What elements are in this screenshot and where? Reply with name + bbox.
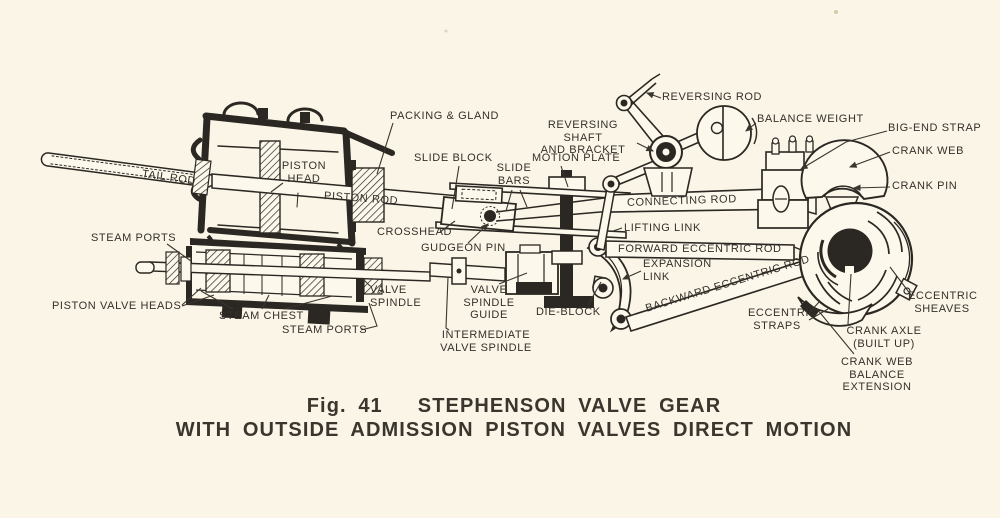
label-crank-axle-built-up: CRANK AXLE (BUILT UP) xyxy=(844,325,924,350)
crank-group xyxy=(758,136,917,326)
caption-line-2: WITH OUTSIDE ADMISSION PISTON VALVES DIR… xyxy=(28,418,1000,442)
figure-41-page: PACKING & GLANDSLIDE BLOCKSLIDE BARSMOTI… xyxy=(0,0,1000,518)
label-reversing-rod: REVERSING ROD xyxy=(662,91,762,104)
figure-caption: Fig. 41 STEPHENSON VALVE GEAR WITH OUTSI… xyxy=(28,394,1000,442)
label-steam-ports-lower: STEAM PORTS xyxy=(282,324,367,337)
label-forward-eccentric-rod: FORWARD ECCENTRIC ROD xyxy=(618,243,782,256)
caption-line-1: Fig. 41 STEPHENSON VALVE GEAR xyxy=(28,394,1000,418)
label-intermediate-valve-spindle: INTERMEDIATE VALVE SPINDLE xyxy=(440,329,532,354)
label-balance-weight: BALANCE WEIGHT xyxy=(757,113,864,126)
label-expansion-link: EXPANSION LINK xyxy=(643,258,712,283)
label-gudgeon-pin: GUDGEON PIN xyxy=(421,242,506,255)
label-steam-chest: STEAM CHEST xyxy=(219,310,304,323)
label-big-end-strap: BIG-END STRAP xyxy=(888,122,981,135)
label-eccentric-sheaves: ECCENTRIC SHEAVES xyxy=(908,290,976,315)
label-eccentric-straps: ECCENTRIC STRAPS xyxy=(748,307,806,332)
label-crank-pin: CRANK PIN xyxy=(892,180,957,193)
paper-specks xyxy=(445,10,839,33)
label-crosshead: CROSSHEAD xyxy=(377,226,452,239)
label-slide-bars: SLIDE BARS xyxy=(492,162,536,187)
cylinder-group xyxy=(41,103,460,243)
label-valve-spindle: VALVE SPINDLE xyxy=(370,284,421,309)
label-packing-and-gland: PACKING & GLAND xyxy=(390,110,499,123)
label-lifting-link: LIFTING LINK xyxy=(624,222,701,235)
label-die-block: DIE-BLOCK xyxy=(536,306,601,319)
label-crank-web: CRANK WEB xyxy=(892,145,964,158)
label-steam-ports-upper: STEAM PORTS xyxy=(91,232,176,245)
label-reversing-shaft-and-bracket: REVERSING SHAFT AND BRACKET xyxy=(528,119,638,157)
label-piston-head: PISTON HEAD xyxy=(281,160,327,185)
label-slide-block: SLIDE BLOCK xyxy=(414,152,493,165)
label-piston-valve-heads: PISTON VALVE HEADS xyxy=(52,300,181,313)
label-valve-spindle-guide: VALVE SPINDLE GUIDE xyxy=(446,284,532,322)
label-crank-web-balance-extension: CRANK WEB BALANCE EXTENSION xyxy=(815,356,939,394)
